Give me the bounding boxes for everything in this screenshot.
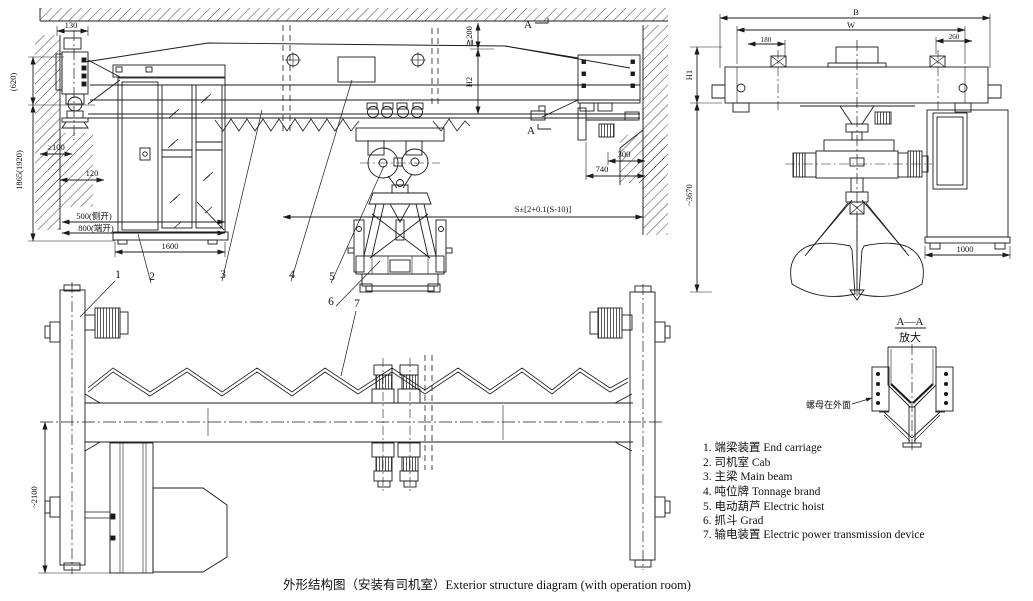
part-callouts: 1 2 3 4 5 6 7 [80,80,384,376]
end-view-cabinet [925,110,1010,249]
end-view-dimensions: B W 180 260 H1 ~3670 1000 [684,7,1010,292]
hoist-motor [402,149,428,175]
buffer-left [712,85,725,98]
plan-main-beam [40,394,662,451]
plan-dimensions: ~2100 [29,422,112,573]
dim-b: B [853,7,859,17]
dim-3670: ~3670 [684,184,694,206]
plan-view: ~2100 [29,282,670,574]
dim-300: 300 [618,149,631,159]
plan-cab [85,443,227,573]
callout-1: 1 [115,269,121,281]
end-view-girder [725,67,988,103]
callout-7: 7 [354,298,360,310]
dim-130: 130 [65,20,78,30]
section-flag-bottom [538,124,551,129]
left-wall [35,35,93,230]
dim-ge100: ≥100 [47,142,64,152]
callout-4: 4 [289,269,295,281]
end-view-grab-open [791,192,924,300]
detail-title: A—A [897,316,924,328]
legend-item-4: 4. 吨位牌 Tonnage brand [703,484,821,498]
dim-740: 740 [596,164,609,174]
dim-span: S±[2+0.1(S-10)] [515,204,572,214]
end-view: B W 180 260 H1 ~3670 1000 [684,7,1010,300]
dim-h1: H1 [684,70,694,80]
dim-800: 800(端开) [78,223,114,233]
electric-hoist-elevation [356,103,444,188]
dim-1600: 1600 [162,241,179,251]
main-girder-elevation [85,25,640,135]
end-view-hoist [785,106,932,192]
cab-window-col1 [162,85,192,228]
callout-3: 3 [220,269,226,281]
callout-6: 6 [328,296,334,308]
plan-break-marks [425,355,432,470]
drawing-caption: 外形结构图（安装有司机室）Exterior structure diagram … [283,577,691,592]
dim-260: 260 [949,33,960,41]
crane-drawing: 130 (620) ≥100 1865(1920) 120 500(侧开) 80… [0,0,1033,601]
dim-2100: ~2100 [29,486,39,508]
parts-legend: 1. 端梁装置 End carriage 2. 司机室 Cab 3. 主梁 Ma… [703,440,925,541]
trolley-wheels [367,103,423,118]
dim-h2: H2 [464,77,474,87]
plan-end-carriage-right [590,284,670,570]
dim-500: 500(侧开) [76,211,112,221]
dim-120: 120 [86,168,99,178]
detail-note: 螺母在外面 [806,399,851,410]
break-marks-elevation [283,25,438,135]
dim-620: (620) [8,73,18,92]
legend-item-7: 7. 输电装置 Electric power transmission devi… [703,527,925,541]
buffer-right [988,85,1001,98]
dim-ge200: ≧200 [464,26,474,46]
plan-festoon-wire [88,368,628,396]
callout-5: 5 [329,271,335,283]
tonnage-plate [338,57,375,82]
legend-item-5: 5. 电动葫芦 Electric hoist [703,500,825,513]
plan-trolley [372,358,420,492]
dim-1000: 1000 [957,244,974,254]
detail-subtitle: 放大 [899,330,921,344]
grab-closed-elevation [348,185,452,292]
callout-2: 2 [149,271,155,283]
legend-item-6: 6. 抓斗 Grad [703,513,764,527]
legend-item-1: 1. 端梁装置 End carriage [703,440,822,454]
ceiling-hatch [40,8,668,21]
dim-w: W [847,20,855,30]
plan-end-carriage-left [45,282,128,574]
drawing-sheet: 130 (620) ≥100 1865(1920) 120 500(侧开) 80… [0,0,1033,601]
cab-window-col2 [196,85,222,228]
festoon-wire-elevation [215,119,470,131]
right-wall [620,25,668,235]
section-mark-a-top: A [524,19,532,31]
legend-item-3: 3. 主梁 Main beam [703,469,792,483]
legend-item-2: 2. 司机室 Cab [703,455,771,469]
detail-a-a: A—A 放大 螺母在外面 [806,316,953,452]
dim-180: 180 [761,36,772,44]
section-mark-a-bottom: A [527,125,535,137]
dim-1865: 1865(1920) [14,150,24,190]
cab-elevation [113,65,228,244]
